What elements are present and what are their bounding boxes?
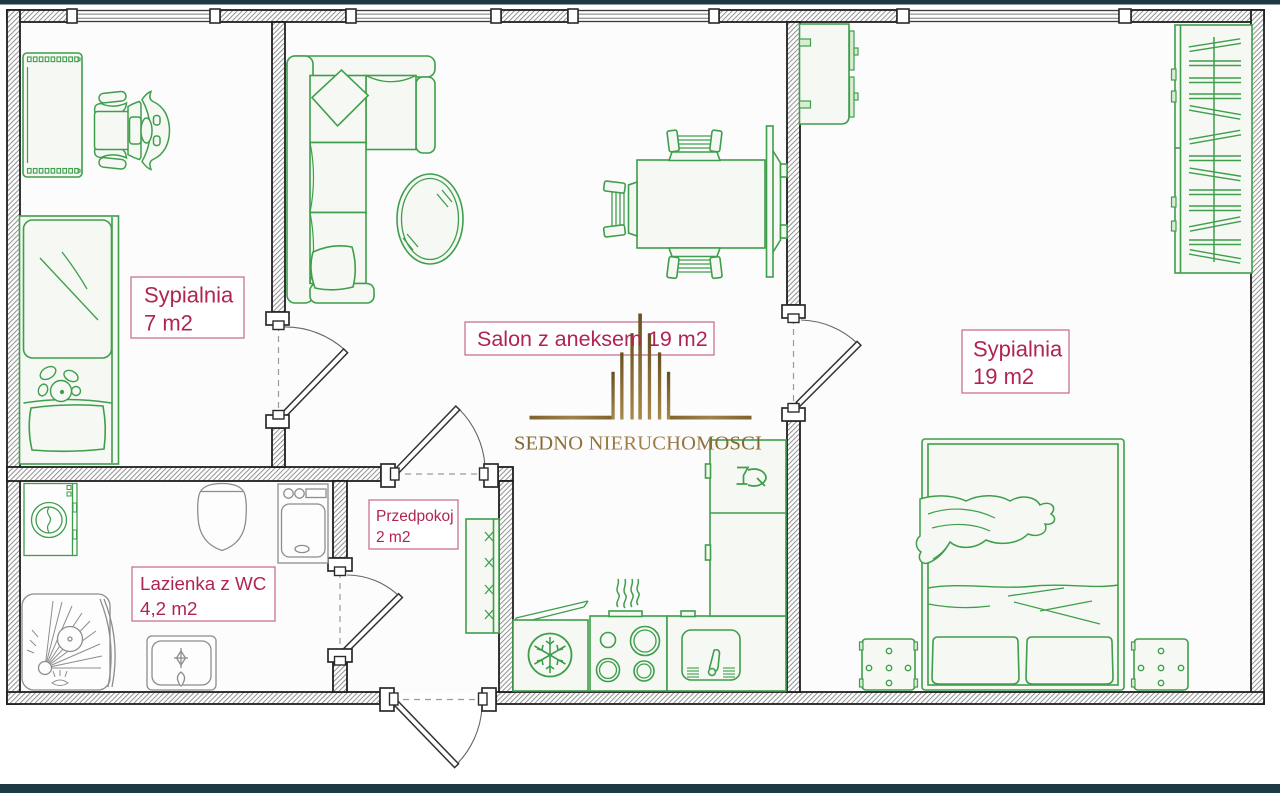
svg-text:7 m2: 7 m2	[144, 311, 193, 336]
svg-text:SEDNO NIERUCHOMOSCI: SEDNO NIERUCHOMOSCI	[514, 433, 762, 455]
svg-text:Sypialnia: Sypialnia	[973, 337, 1063, 362]
svg-text:Przedpokoj: Przedpokoj	[376, 508, 454, 525]
svg-text:19 m2: 19 m2	[973, 364, 1034, 389]
svg-text:4,2 m2: 4,2 m2	[140, 598, 197, 619]
svg-text:Sypialnia: Sypialnia	[144, 283, 234, 308]
svg-text:Lazienka z WC: Lazienka z WC	[140, 573, 266, 594]
svg-text:2 m2: 2 m2	[376, 529, 410, 546]
svg-text:Salon z aneksem 19 m2: Salon z aneksem 19 m2	[477, 327, 708, 351]
